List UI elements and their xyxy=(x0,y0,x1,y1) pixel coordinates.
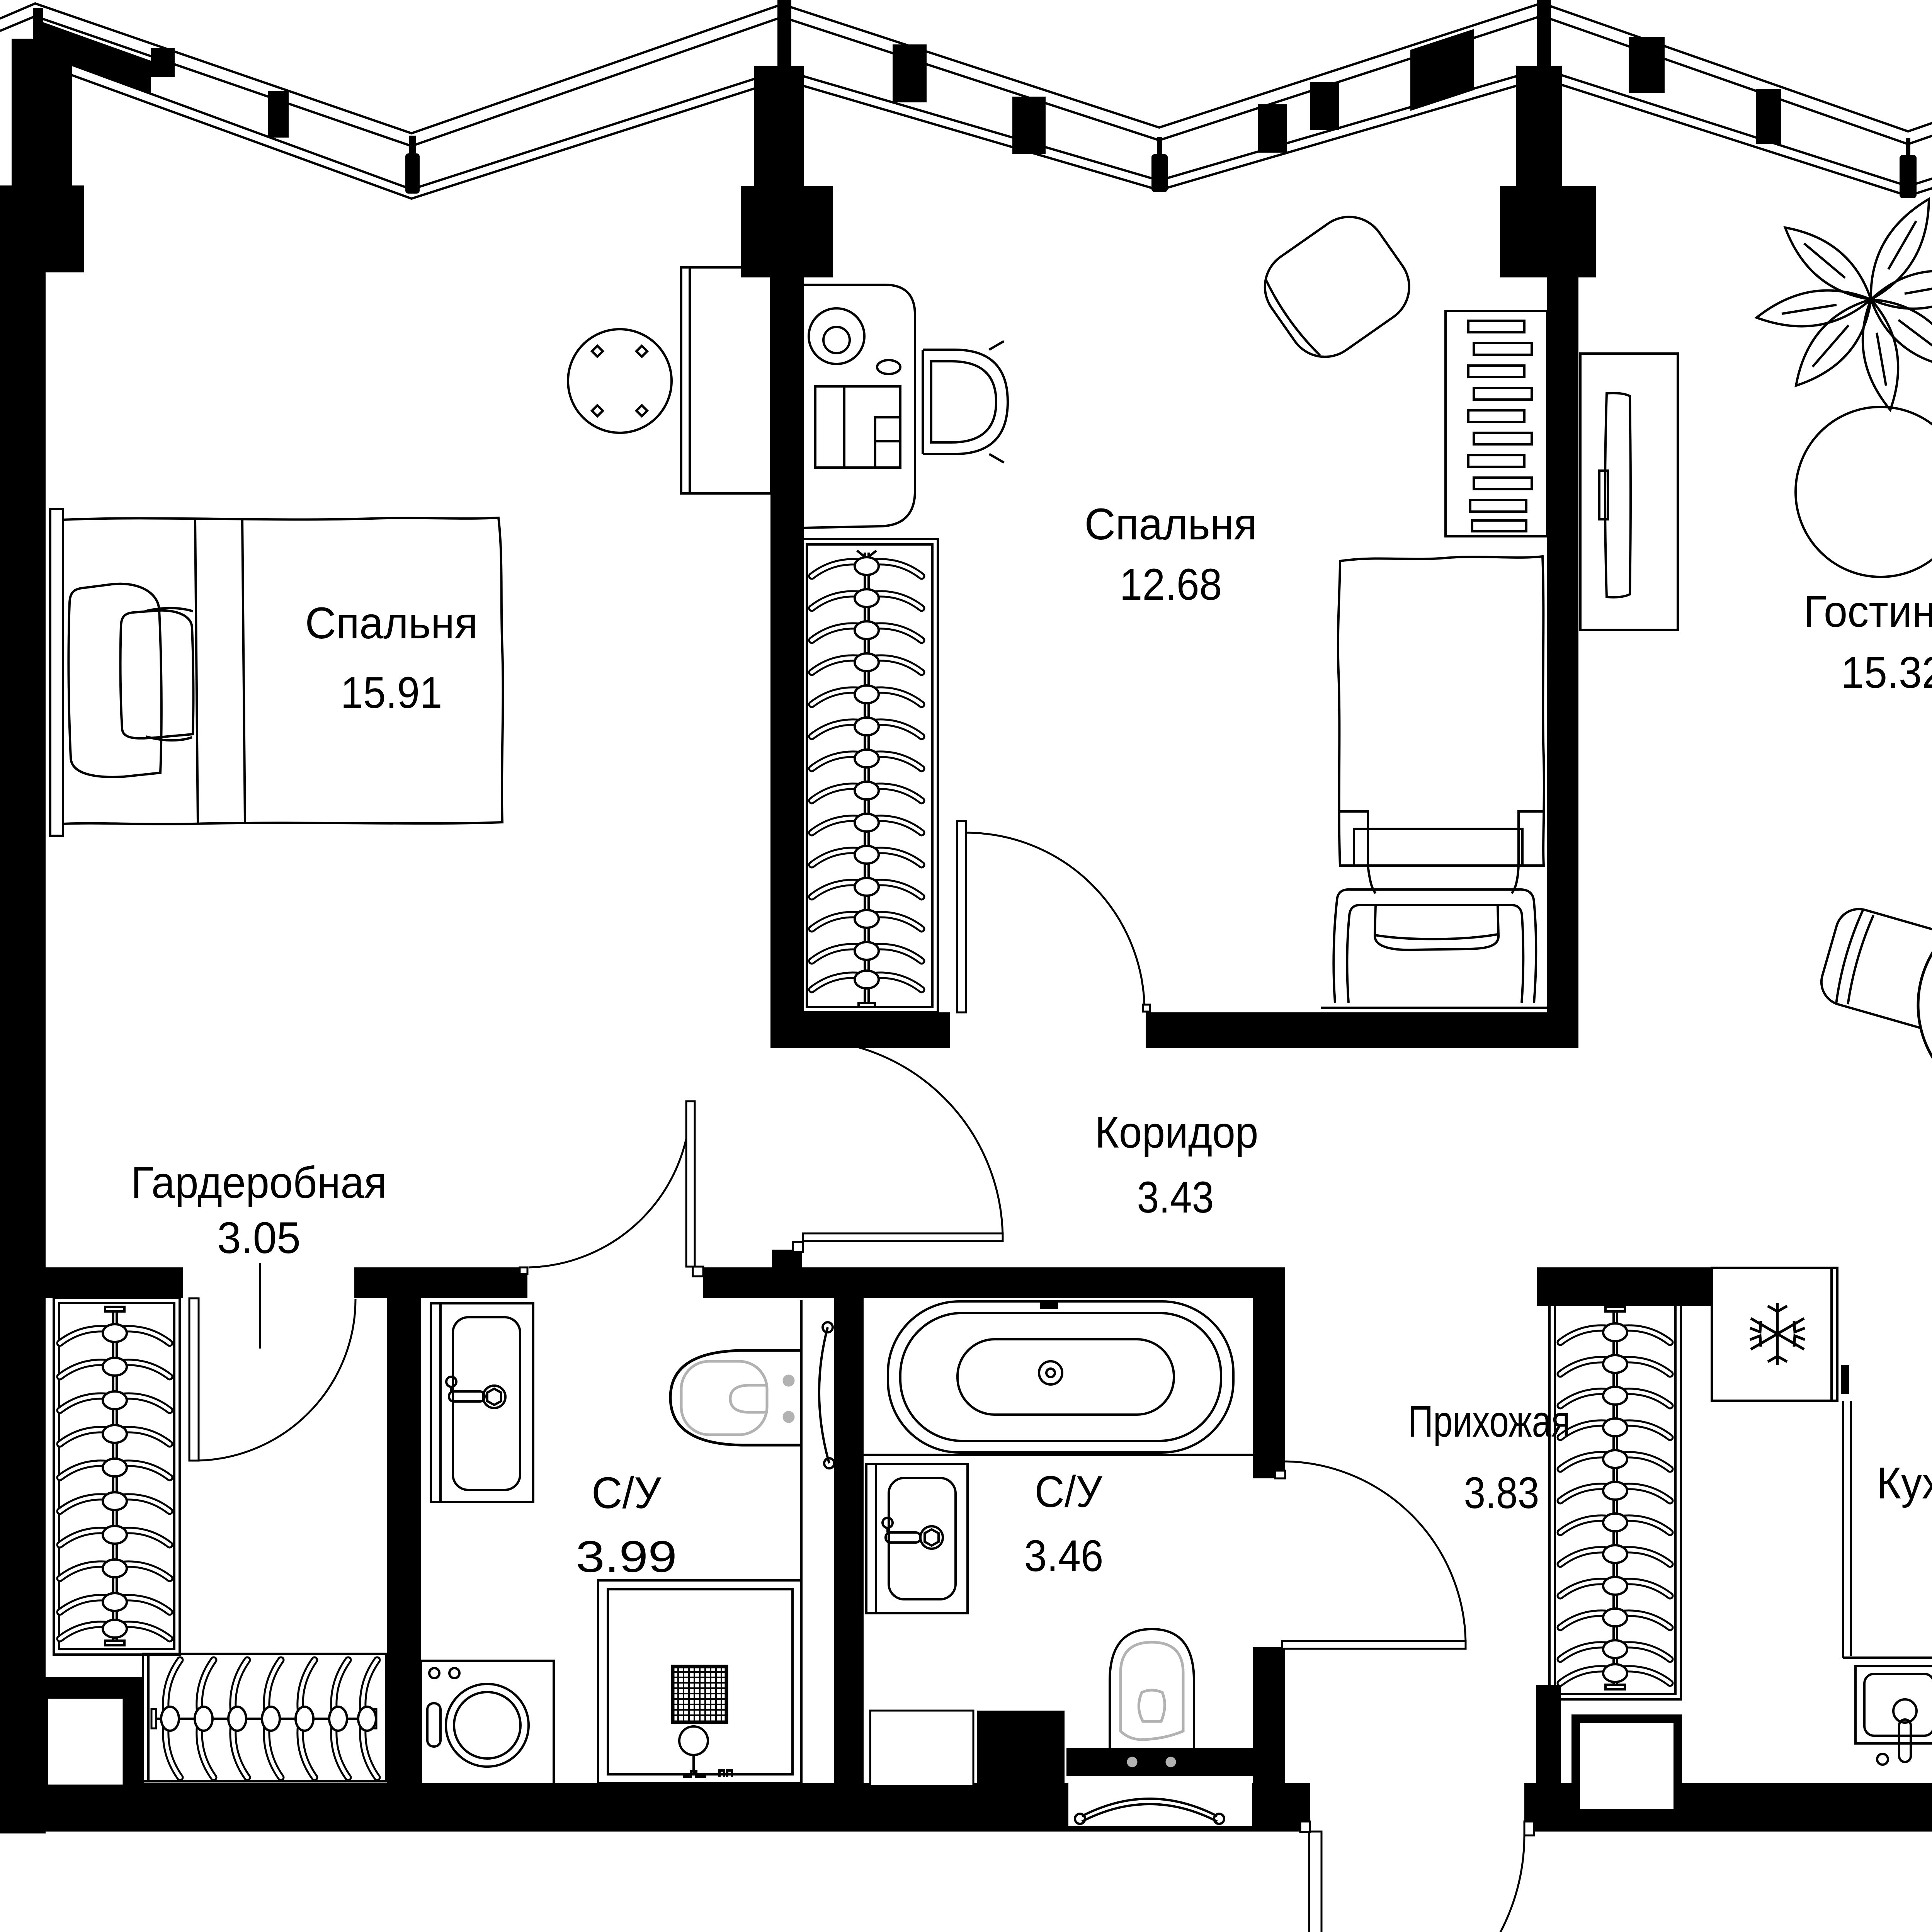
svg-text:3.46: 3.46 xyxy=(1024,1531,1104,1581)
svg-text:Спальня: Спальня xyxy=(1085,500,1257,549)
svg-text:Спальня: Спальня xyxy=(305,599,478,648)
svg-text:3.05: 3.05 xyxy=(217,1213,301,1263)
svg-text:Прихожая: Прихожая xyxy=(1408,1397,1570,1446)
svg-text:12.68: 12.68 xyxy=(1120,560,1222,609)
svg-text:С/У: С/У xyxy=(1035,1467,1103,1517)
svg-text:Гостиная: Гостиная xyxy=(1804,587,1932,636)
svg-text:15.32: 15.32 xyxy=(1841,648,1932,697)
svg-text:3.43: 3.43 xyxy=(1137,1173,1214,1222)
svg-text:3.99: 3.99 xyxy=(576,1532,677,1582)
svg-text:15.91: 15.91 xyxy=(341,668,442,718)
svg-text:Гардеробная: Гардеробная xyxy=(131,1158,387,1207)
svg-text:С/У: С/У xyxy=(592,1468,662,1518)
svg-text:Кухня-ниша: Кухня-ниша xyxy=(1877,1459,1932,1508)
svg-text:3.83: 3.83 xyxy=(1464,1468,1539,1518)
svg-text:Коридор: Коридор xyxy=(1095,1108,1259,1157)
